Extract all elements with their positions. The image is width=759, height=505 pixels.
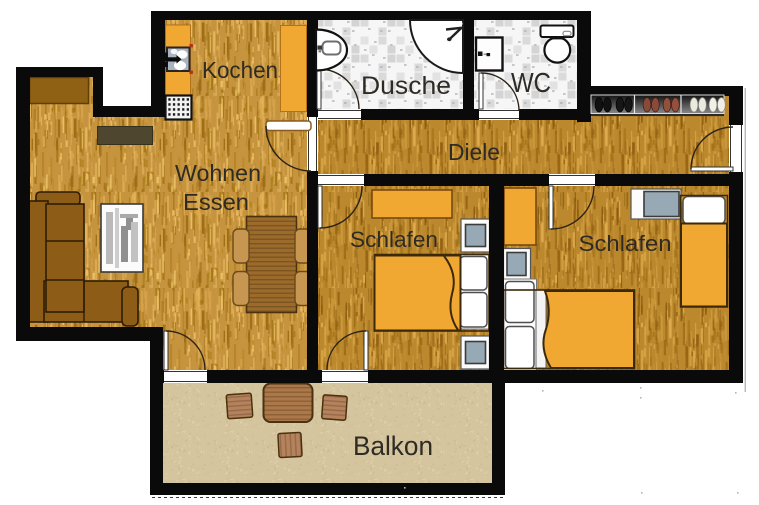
svg-text:Balkon: Balkon: [353, 431, 433, 461]
svg-text:WC: WC: [511, 67, 551, 98]
svg-text:Schlafen: Schlafen: [350, 227, 438, 252]
svg-text:Kochen: Kochen: [202, 57, 278, 83]
svg-text:Diele: Diele: [448, 139, 500, 165]
svg-text:Schlafen: Schlafen: [579, 231, 672, 256]
svg-text:Dusche: Dusche: [361, 72, 451, 100]
svg-text:Essen: Essen: [183, 189, 249, 215]
svg-text:Wohnen: Wohnen: [175, 160, 261, 186]
